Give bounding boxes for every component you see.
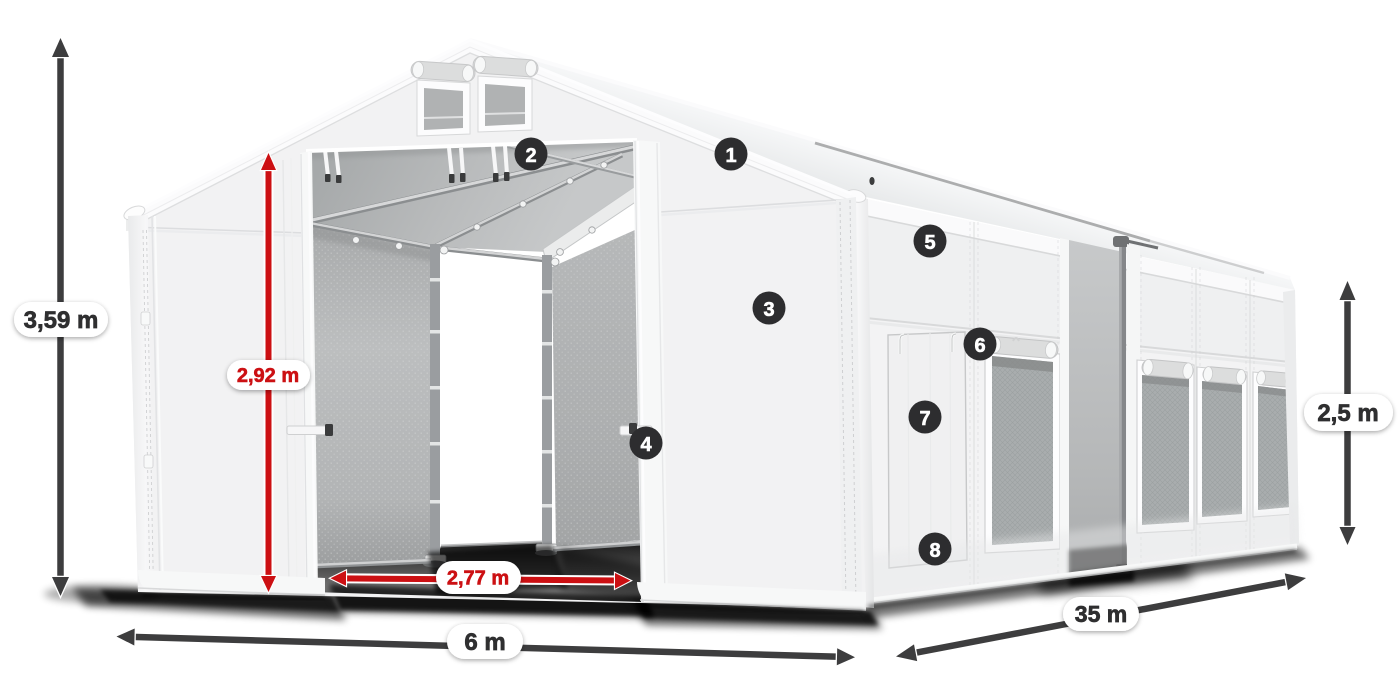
svg-text:7: 7 bbox=[919, 408, 930, 430]
svg-text:2: 2 bbox=[525, 145, 536, 167]
svg-text:3,59 m: 3,59 m bbox=[24, 307, 99, 334]
svg-text:3: 3 bbox=[763, 299, 774, 321]
svg-text:1: 1 bbox=[725, 145, 736, 167]
svg-text:6: 6 bbox=[974, 335, 985, 357]
svg-text:2,5 m: 2,5 m bbox=[1317, 400, 1378, 427]
svg-text:8: 8 bbox=[929, 540, 940, 562]
svg-text:2,77 m: 2,77 m bbox=[447, 568, 509, 590]
svg-text:35 m: 35 m bbox=[1075, 601, 1127, 627]
svg-text:2,92 m: 2,92 m bbox=[237, 365, 299, 387]
svg-text:6 m: 6 m bbox=[464, 629, 505, 656]
svg-text:4: 4 bbox=[640, 434, 652, 456]
svg-text:5: 5 bbox=[924, 232, 935, 254]
